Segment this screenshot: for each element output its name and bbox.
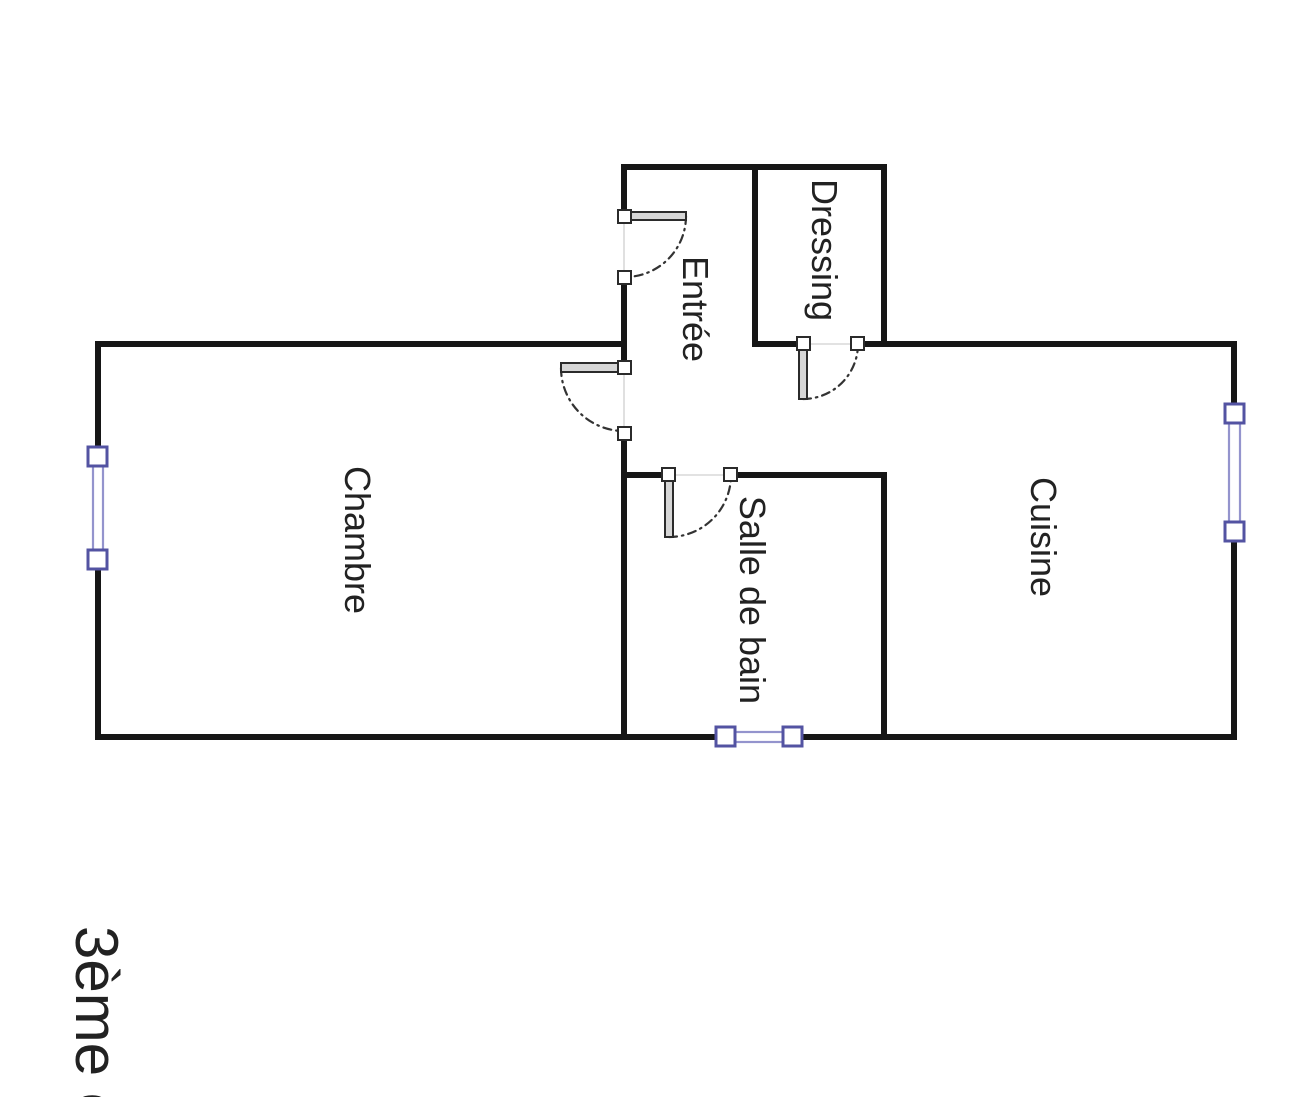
cuisine-window-cap-top (1225, 404, 1244, 423)
room-label-chambre: Chambre (337, 466, 378, 614)
chambre-door-jamb-bottom (618, 427, 631, 440)
salle-de-bain-window-cap-right (783, 727, 802, 746)
wall-top-middle-segment (752, 341, 803, 347)
wall-right-lower-segment (1231, 540, 1237, 740)
cuisine-window-glass (1229, 421, 1240, 524)
wall-bathroom-top-left (621, 472, 662, 478)
dressing-door (797, 337, 864, 399)
chambre-door-swing-arc (561, 368, 624, 431)
chambre-window-left (88, 447, 107, 569)
chambre-window-cap-top (88, 447, 107, 466)
room-label-cuisine: Cuisine (1023, 477, 1064, 597)
wall-bathroom-top-right (737, 472, 887, 478)
salle-de-bain-window-bottom (716, 727, 802, 746)
floor-plan-canvas: Entrée Dressing Chambre Salle de bain Cu… (0, 0, 1294, 1097)
chambre-door-leaf (561, 363, 624, 372)
wall-extension-right (881, 164, 887, 347)
salle-de-bain-window-glass (734, 732, 784, 742)
room-label-entree: Entrée (675, 256, 716, 362)
dressing-door-jamb-left (797, 337, 810, 350)
dressing-door-swing-arc (803, 344, 858, 399)
dressing-door-jamb-right (851, 337, 864, 350)
dressing-door-leaf (799, 350, 807, 399)
wall-top-left-segment (95, 341, 627, 347)
floor-level-label: 3ème étage (63, 926, 130, 1097)
entrance-door-leaf (627, 212, 686, 220)
wall-left-lower-segment (95, 567, 101, 740)
chambre-window-glass (93, 464, 103, 552)
chambre-door-jamb-top (618, 361, 631, 374)
cuisine-window-right (1225, 404, 1244, 541)
salle-de-bain-door-leaf (665, 481, 673, 537)
room-label-salle-de-bain: Salle de bain (732, 496, 773, 704)
wall-hall-chambre-lower (621, 440, 627, 740)
entrance-door-jamb-top (618, 210, 631, 223)
wall-bottom-right-segment (801, 734, 1237, 740)
wall-right-upper-segment (1231, 341, 1237, 411)
wall-top-right-segment (857, 341, 1237, 347)
wall-extension-left-upper (621, 164, 627, 212)
walls (95, 164, 1237, 740)
salle-de-bain-door-swing-arc (669, 475, 731, 537)
cuisine-window-cap-bottom (1225, 522, 1244, 541)
wall-left-upper-segment (95, 341, 101, 448)
salle-de-bain-door-jamb-right (724, 468, 737, 481)
chambre-door (561, 361, 631, 440)
wall-entree-dressing-divider (752, 164, 758, 347)
chambre-window-cap-bottom (88, 550, 107, 569)
room-label-dressing: Dressing (804, 179, 845, 321)
wall-hall-chambre-upper (621, 347, 627, 361)
room-labels: Entrée Dressing Chambre Salle de bain Cu… (337, 179, 1064, 704)
floor-plan-drawing: Entrée Dressing Chambre Salle de bain Cu… (0, 0, 1294, 1097)
salle-de-bain-door (662, 468, 737, 537)
salle-de-bain-door-jamb-left (662, 468, 675, 481)
wall-extension-left-lower (621, 283, 627, 347)
salle-de-bain-window-cap-left (716, 727, 735, 746)
wall-bathroom-right (881, 472, 887, 740)
entrance-door-jamb-bottom (618, 271, 631, 284)
